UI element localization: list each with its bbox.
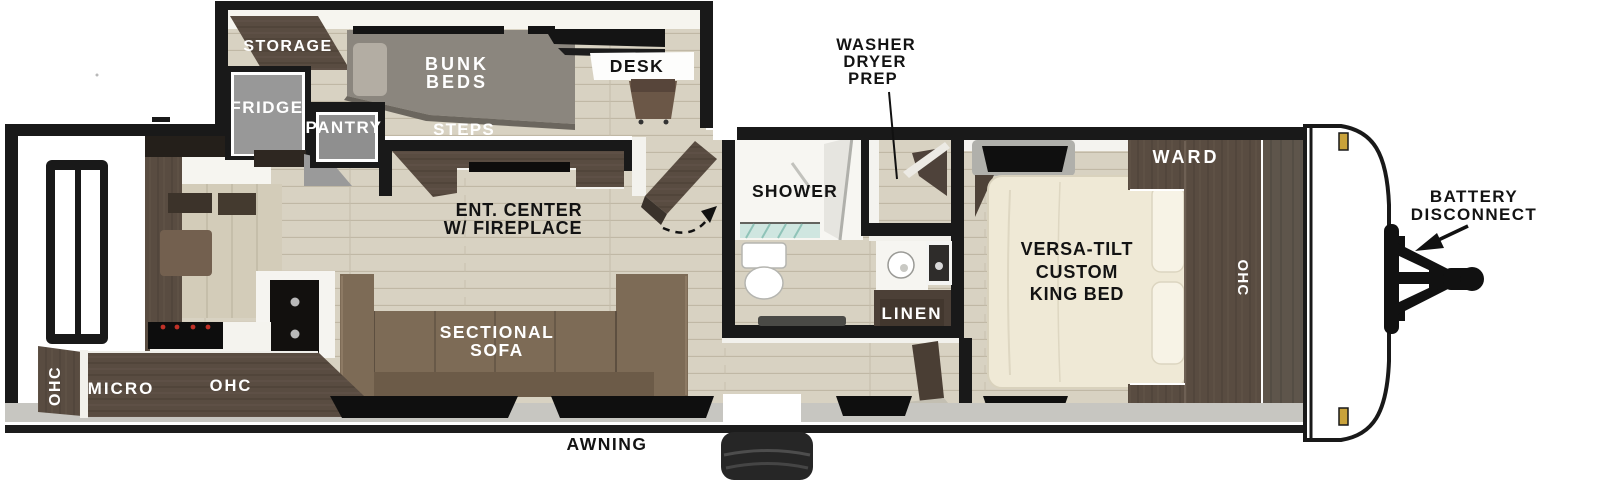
- svg-text:DESK: DESK: [610, 56, 665, 76]
- svg-text:OHC: OHC: [210, 377, 253, 395]
- svg-text:KING BED: KING BED: [1030, 284, 1124, 304]
- svg-text:PREP: PREP: [848, 70, 898, 88]
- svg-text:WARD: WARD: [1153, 147, 1220, 167]
- svg-text:CUSTOM: CUSTOM: [1036, 262, 1118, 282]
- svg-text:SECTIONAL: SECTIONAL: [440, 322, 555, 342]
- svg-text:OHC: OHC: [1234, 260, 1251, 297]
- svg-text:OHC: OHC: [47, 366, 64, 406]
- svg-text:DISCONNECT: DISCONNECT: [1411, 205, 1537, 224]
- svg-text:BEDS: BEDS: [426, 72, 488, 92]
- svg-text:STORAGE: STORAGE: [243, 38, 332, 55]
- svg-text:MICRO: MICRO: [88, 379, 155, 398]
- svg-text:AWNING: AWNING: [567, 434, 648, 454]
- svg-text:PANTRY: PANTRY: [306, 118, 383, 137]
- svg-text:VERSA-TILT: VERSA-TILT: [1021, 239, 1134, 259]
- svg-text:SHOWER: SHOWER: [752, 181, 838, 201]
- svg-text:ENT. CENTER: ENT. CENTER: [456, 200, 583, 220]
- svg-text:BATTERY: BATTERY: [1430, 187, 1518, 206]
- svg-text:DRYER: DRYER: [843, 53, 906, 71]
- svg-text:STEPS: STEPS: [433, 120, 495, 139]
- svg-text:SOFA: SOFA: [470, 340, 524, 360]
- svg-text:WASHER: WASHER: [836, 36, 916, 54]
- svg-text:W/ FIREPLACE: W/ FIREPLACE: [444, 218, 583, 238]
- svg-text:FRIDGE: FRIDGE: [230, 98, 303, 117]
- svg-text:LINEN: LINEN: [882, 304, 943, 323]
- svg-text:BUNK: BUNK: [425, 54, 489, 74]
